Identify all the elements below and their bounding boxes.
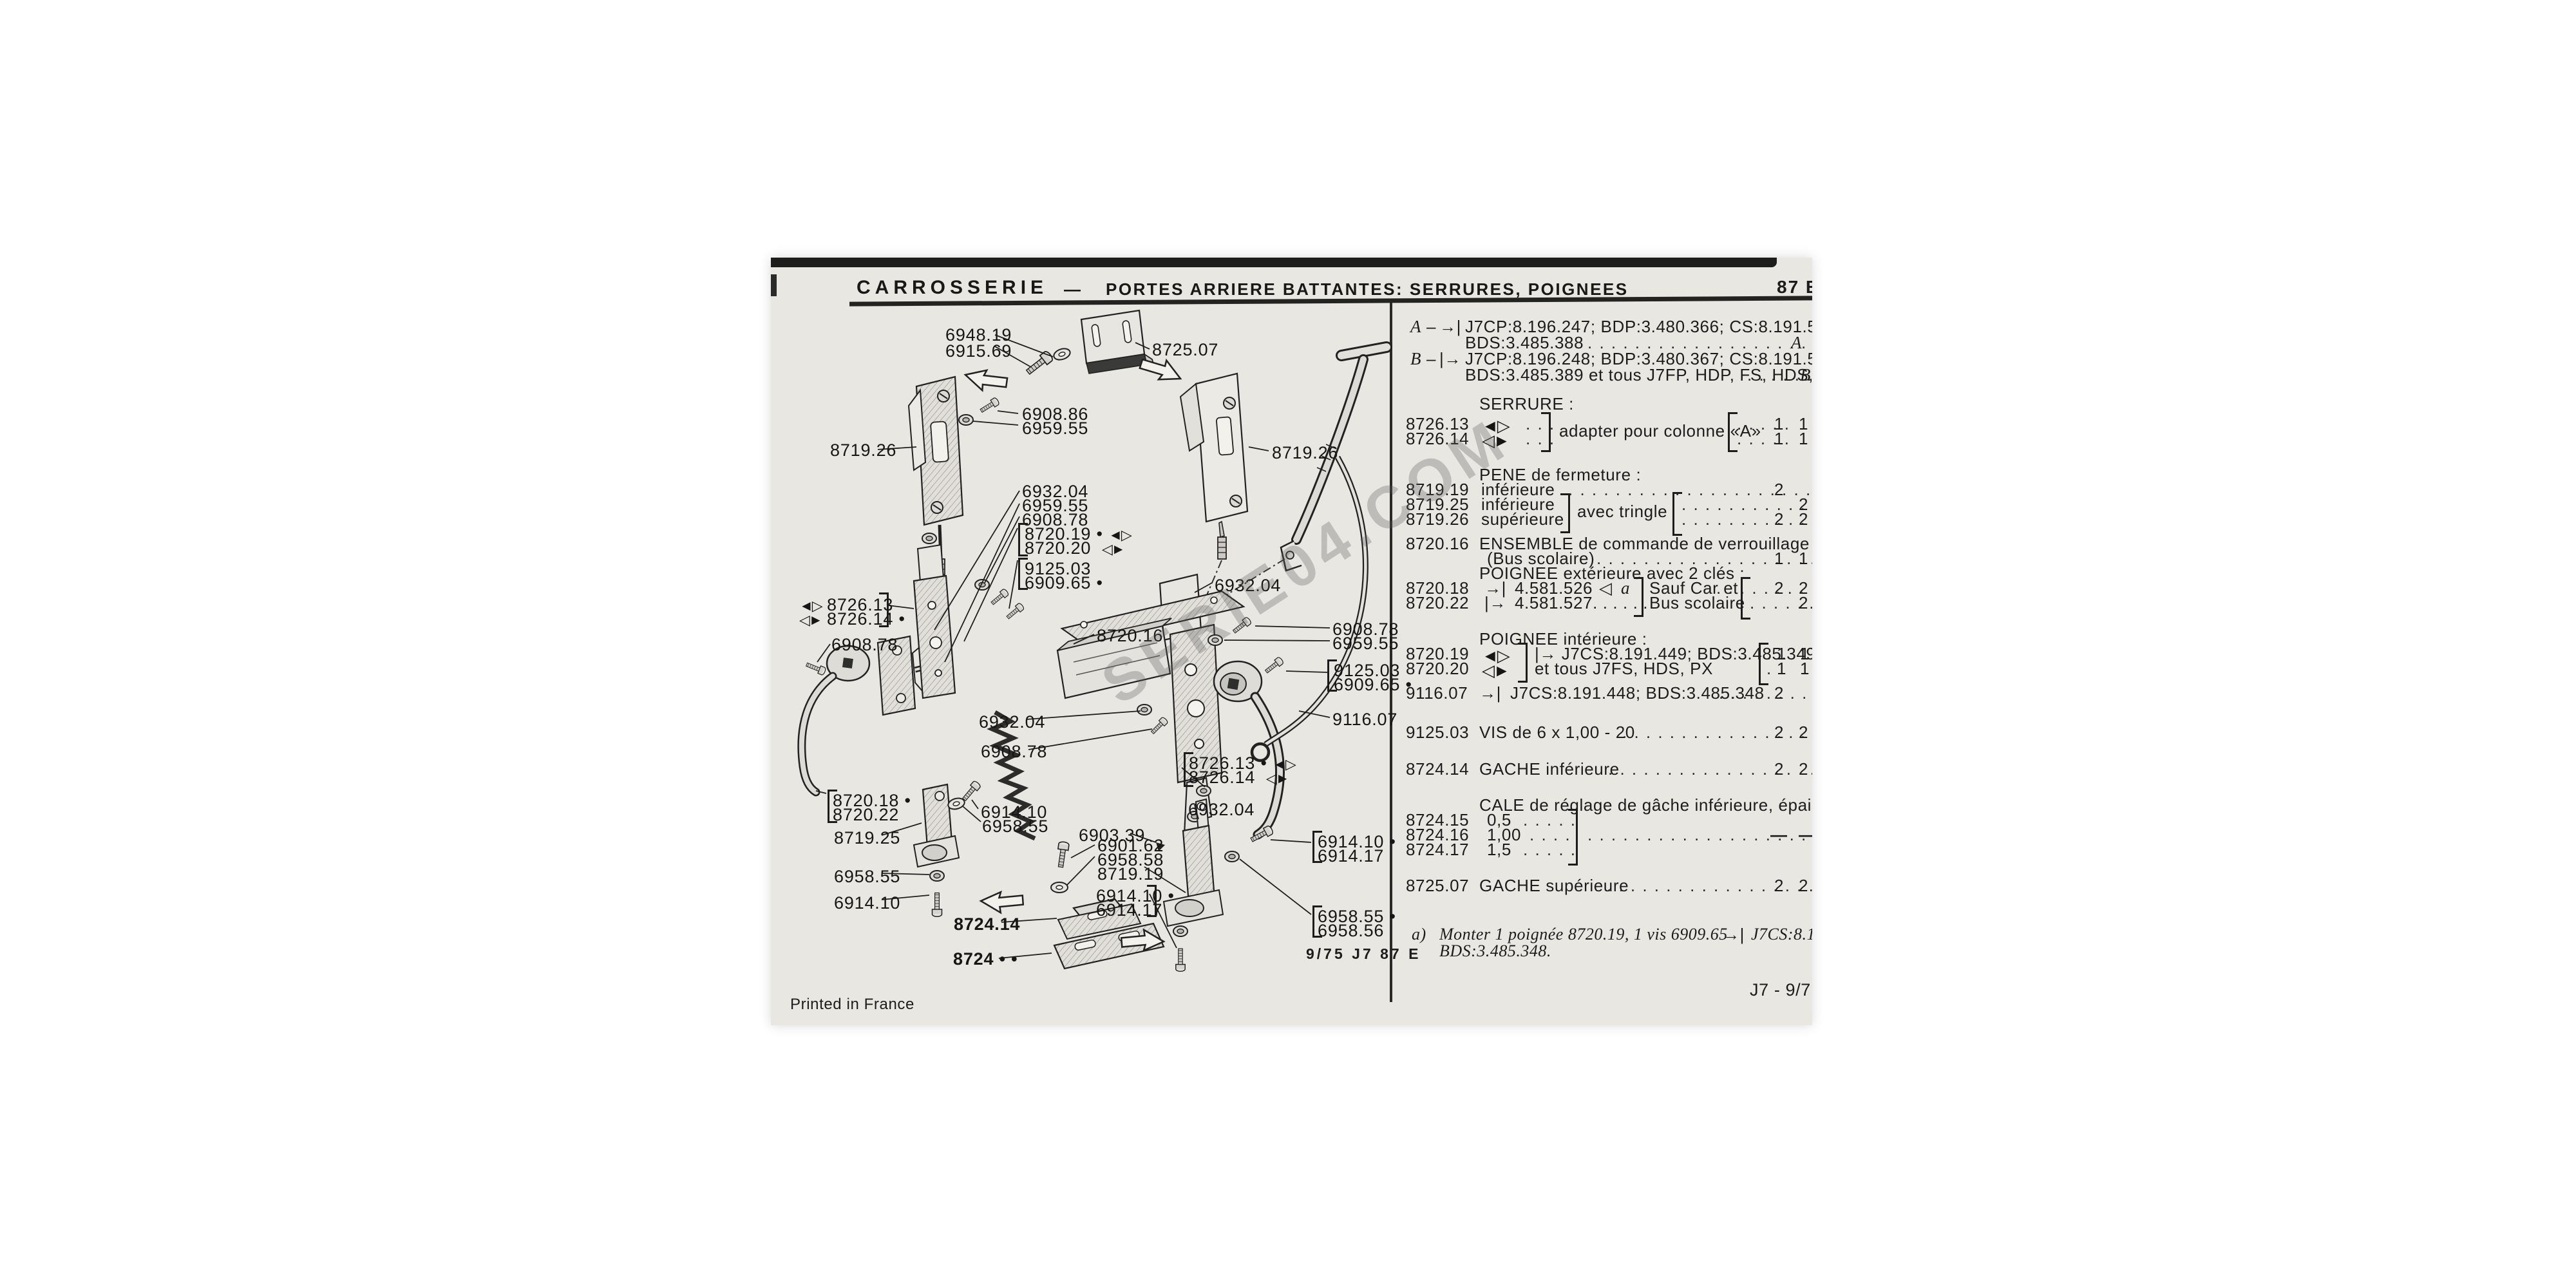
part-label: 6932.04 [979, 712, 1045, 732]
direction-icon: ◁► [799, 612, 822, 628]
label-bracket [1312, 905, 1322, 938]
part-label: 8720.22 [833, 805, 899, 825]
label-bracket [879, 592, 889, 627]
part-label: 6914.10 [834, 893, 900, 913]
part-label: 8725.07 [1152, 340, 1218, 360]
label-bracket [1327, 659, 1337, 692]
part-label: 8720.20 ◁► [1025, 538, 1124, 558]
screenshot-canvas: { "header": { "section": "CARROSSERIE", … [0, 0, 2576, 1288]
part-label: 6932.04 [1188, 800, 1255, 820]
group-bracket [1759, 643, 1768, 685]
part-label: 8719.26 [830, 440, 896, 460]
dot-leader: . . . . . . . . [1716, 578, 1805, 598]
part-label: 8724.14 [954, 914, 1020, 934]
part-label: 6959.55 [1022, 419, 1088, 439]
part-label: 6932.04 [1215, 576, 1281, 596]
label-bracket [1018, 558, 1028, 590]
group-bracket [1560, 493, 1570, 533]
label-bracket [1312, 831, 1322, 863]
label-bracket [1184, 752, 1193, 787]
part-label: 6958.55 [834, 867, 900, 887]
group-bracket [1541, 412, 1551, 452]
part-label: 6915.69 [945, 341, 1012, 361]
exploded-diagram [771, 258, 1812, 1025]
part-label: 8719.26 [1272, 443, 1338, 463]
direction-icon: ◁► [1102, 541, 1124, 557]
part-label: 6958.55 [982, 817, 1048, 837]
group-bracket [1672, 492, 1682, 536]
label-bracket [1147, 885, 1157, 917]
part-label: 6959.55 [1332, 634, 1399, 654]
part-label: 8719.25 [834, 828, 900, 848]
part-label: 6908.78 [831, 635, 898, 655]
part-label: 9116.07 [1332, 710, 1397, 730]
part-label: 6958.56 [1318, 921, 1384, 941]
group-bracket [1568, 809, 1578, 866]
part-label: 8726.14 ◁► [1189, 768, 1289, 788]
group-bracket [1728, 412, 1738, 452]
part-label: 6914.17 [1318, 846, 1384, 866]
label-bracket [1018, 523, 1028, 556]
part-label: 8724 • • [953, 949, 1018, 969]
catalog-page: CARROSSERIE — PORTES ARRIERE BATTANTES: … [771, 258, 1812, 1025]
part-label: ◁► 8726.14 • [799, 609, 905, 629]
part-label: 8719.19 [1097, 864, 1164, 884]
group-bracket [1741, 577, 1750, 620]
part-label: 6909.65 • [1334, 675, 1412, 695]
part-label: 8720.16 [1097, 626, 1163, 646]
label-bracket [828, 790, 837, 823]
part-label: 6909.65 • [1025, 573, 1103, 593]
group-bracket [1634, 577, 1643, 617]
direction-icon: ◁► [1266, 770, 1289, 786]
part-label: 6908.78 [981, 742, 1047, 762]
group-bracket [1518, 643, 1528, 683]
